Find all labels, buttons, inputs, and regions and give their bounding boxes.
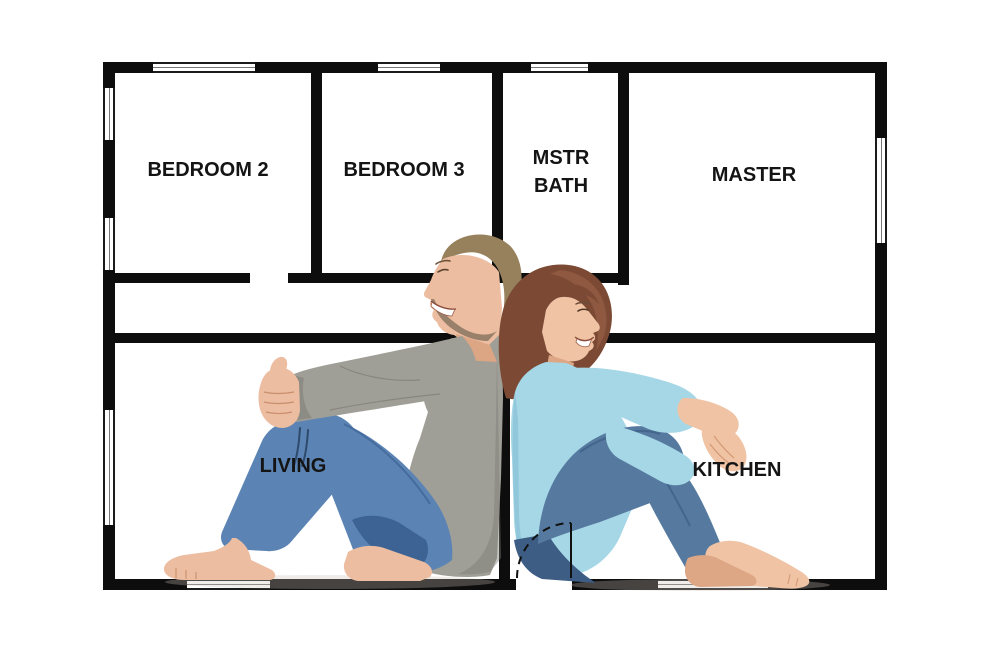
room-label-text: MASTER <box>712 164 796 186</box>
room-label-text: KITCHEN <box>693 459 782 481</box>
room-label-kitchen: KITCHEN <box>693 456 782 484</box>
room-label-text: LIVING <box>260 455 327 477</box>
room-label-master: MASTER <box>712 161 796 189</box>
room-label-bedroom3: BEDROOM 3 <box>343 156 464 184</box>
couple-photo <box>0 0 1000 667</box>
room-label-text: BEDROOM 2 <box>147 159 268 181</box>
room-label-living: LIVING <box>260 452 327 480</box>
room-label-text: MSTR <box>533 144 590 172</box>
floor-plan-composite: BEDROOM 2 BEDROOM 3 MSTR BATH MASTER LIV… <box>0 0 1000 667</box>
room-label-text: BATH <box>533 172 590 200</box>
room-label-mstr-bath: MSTR BATH <box>533 144 590 200</box>
room-label-text: BEDROOM 3 <box>343 159 464 181</box>
man-figure <box>164 234 522 581</box>
room-label-bedroom2: BEDROOM 2 <box>147 156 268 184</box>
woman-figure <box>499 264 810 588</box>
